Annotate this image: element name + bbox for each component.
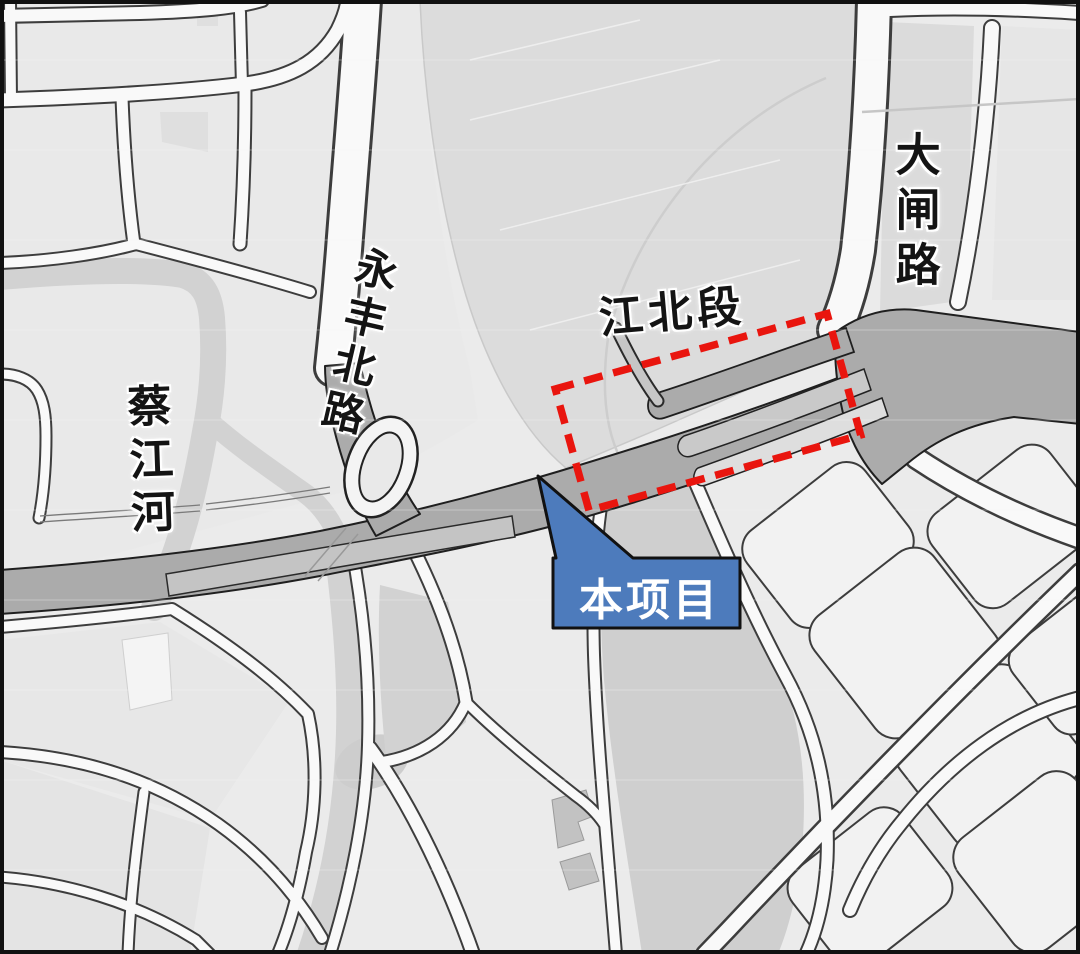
label-caijiang-river: 蔡江河	[120, 382, 173, 543]
map-figure: 蔡江河 永丰北路 江北段 大闸路 本项目	[0, 0, 1080, 954]
northeast-block	[992, 26, 1080, 300]
building	[122, 633, 172, 710]
label-dazha-road: 大闸路	[889, 131, 938, 296]
project-callout-label: 本项目	[556, 561, 743, 631]
